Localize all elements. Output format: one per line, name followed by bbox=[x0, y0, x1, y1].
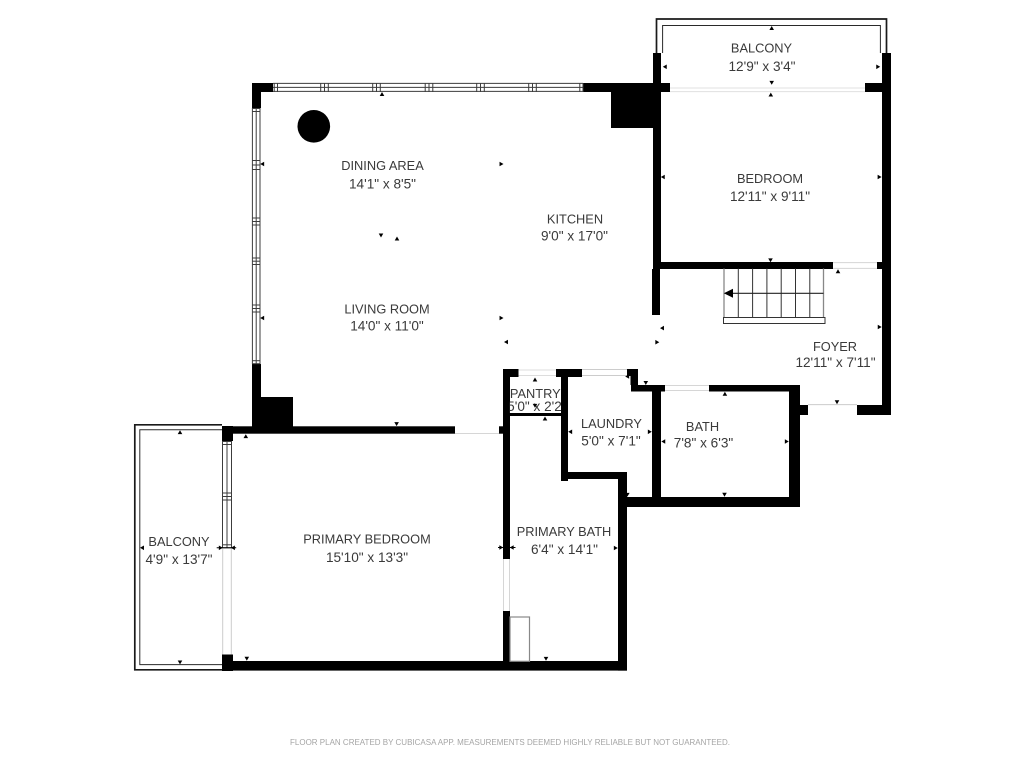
svg-text:BALCONY: BALCONY bbox=[731, 41, 793, 56]
svg-text:BATH: BATH bbox=[686, 419, 719, 434]
svg-text:FOYER: FOYER bbox=[813, 339, 857, 354]
svg-text:5'0" x 7'1": 5'0" x 7'1" bbox=[581, 434, 641, 449]
svg-text:BEDROOM: BEDROOM bbox=[737, 171, 803, 186]
svg-text:DINING AREA: DINING AREA bbox=[341, 158, 424, 173]
svg-text:BALCONY: BALCONY bbox=[148, 534, 210, 549]
svg-text:PRIMARY BATH: PRIMARY BATH bbox=[517, 524, 612, 539]
svg-text:12'11" x 7'11": 12'11" x 7'11" bbox=[795, 355, 875, 370]
svg-text:15'10" x 13'3": 15'10" x 13'3" bbox=[326, 550, 408, 565]
svg-text:6'4" x 14'1": 6'4" x 14'1" bbox=[531, 542, 598, 557]
svg-text:12'9" x 3'4": 12'9" x 3'4" bbox=[729, 59, 796, 74]
svg-text:14'0" x 11'0": 14'0" x 11'0" bbox=[350, 319, 424, 334]
svg-text:KITCHEN: KITCHEN bbox=[547, 212, 603, 227]
svg-text:LAUNDRY: LAUNDRY bbox=[581, 416, 642, 431]
svg-text:FLOOR PLAN CREATED BY CUBICASA: FLOOR PLAN CREATED BY CUBICASA APP. MEAS… bbox=[290, 738, 730, 747]
svg-text:4'9" x 13'7": 4'9" x 13'7" bbox=[146, 552, 213, 567]
svg-text:LIVING ROOM: LIVING ROOM bbox=[344, 302, 429, 317]
svg-text:7'8" x 6'3": 7'8" x 6'3" bbox=[674, 436, 734, 451]
svg-text:12'11" x 9'11": 12'11" x 9'11" bbox=[730, 189, 810, 204]
svg-text:5'0" x 2'2": 5'0" x 2'2" bbox=[507, 399, 567, 414]
svg-text:PRIMARY BEDROOM: PRIMARY BEDROOM bbox=[303, 532, 431, 547]
svg-text:14'1" x 8'5": 14'1" x 8'5" bbox=[349, 177, 416, 192]
svg-text:9'0" x 17'0": 9'0" x 17'0" bbox=[541, 229, 608, 244]
